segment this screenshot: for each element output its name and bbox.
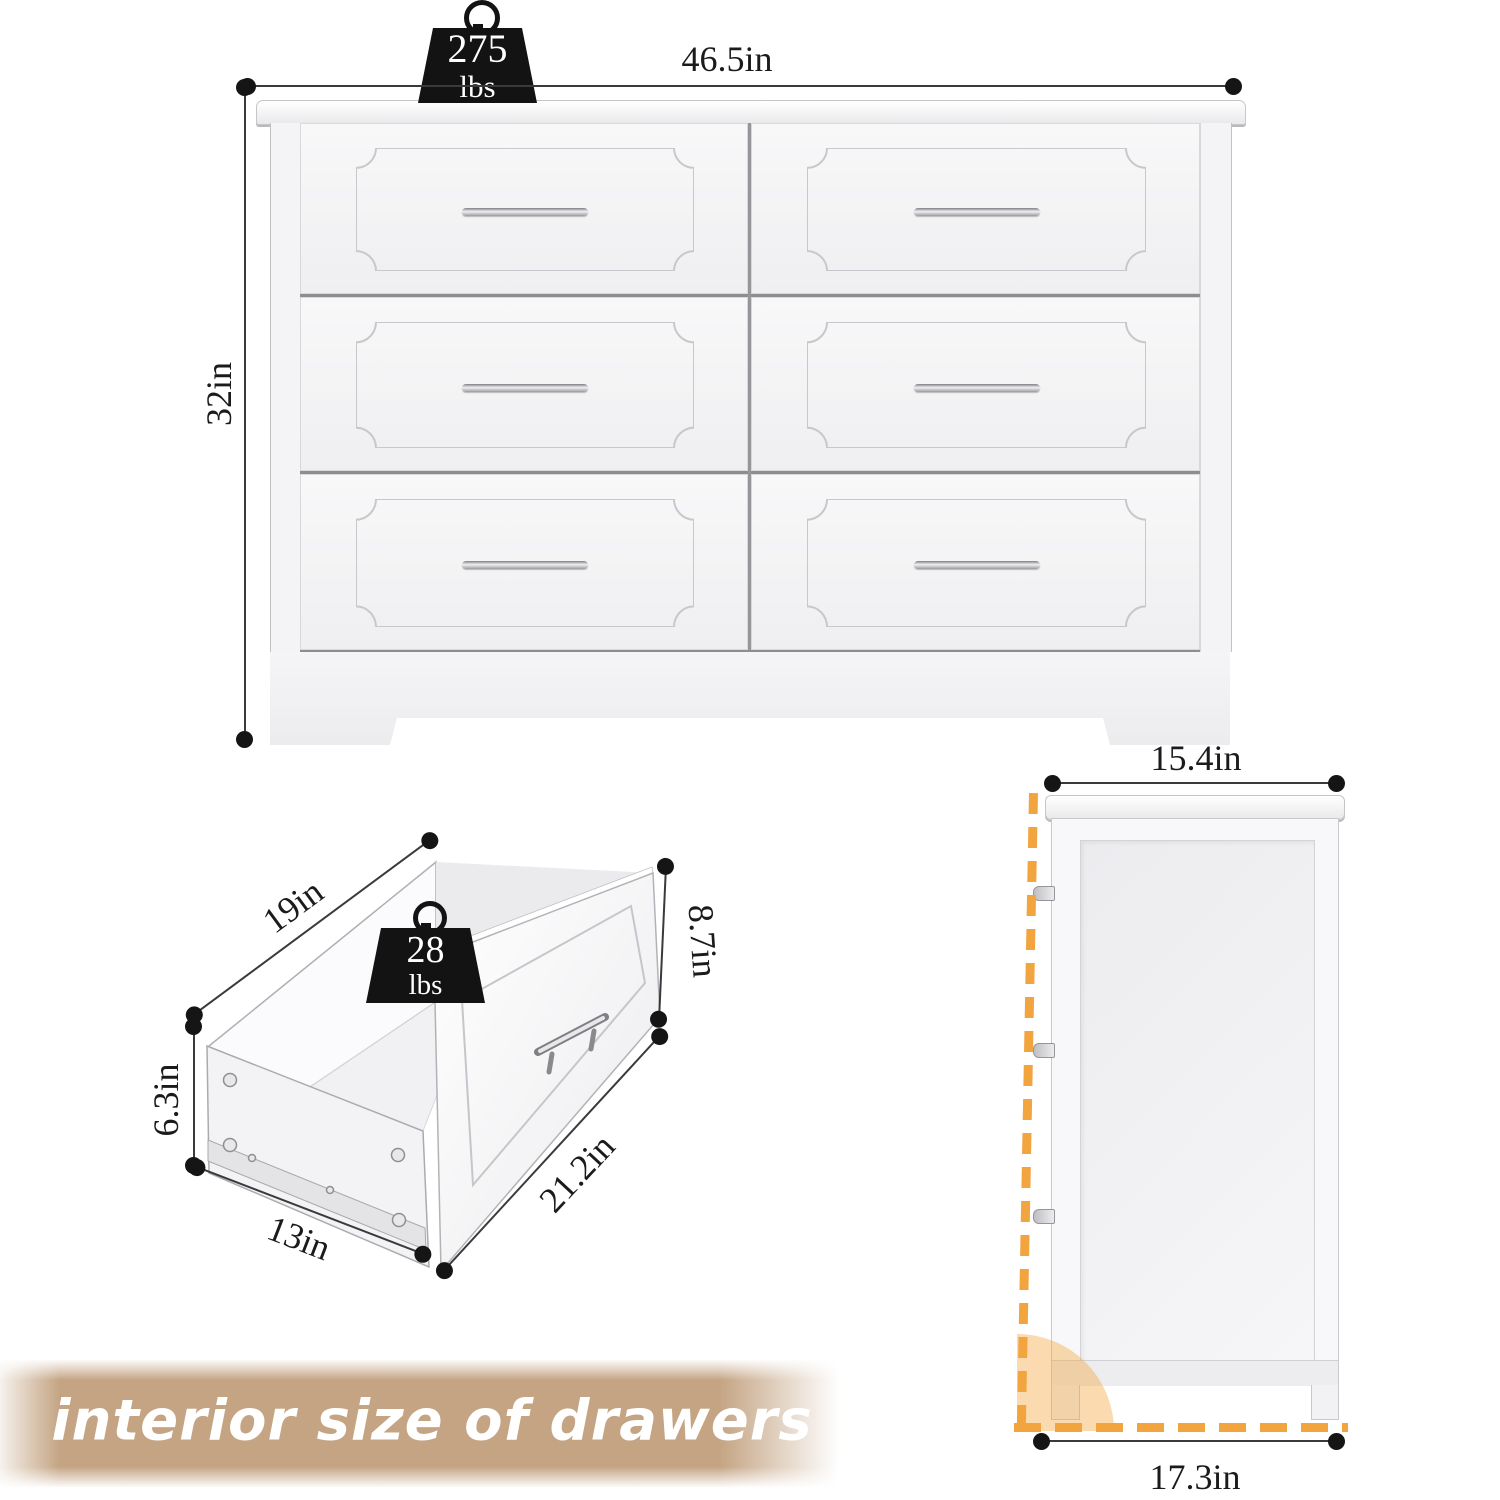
weight-body-icon: 28 lbs xyxy=(366,928,485,1003)
weight-capacity-icon: 275 lbs xyxy=(414,0,540,104)
sideview-top-board xyxy=(1045,795,1345,820)
dim-dot xyxy=(1044,775,1061,792)
sideview-handle-profile xyxy=(1033,1043,1055,1058)
weight-capacity-value: 275 xyxy=(448,29,508,69)
sideview-back-leg xyxy=(1311,1385,1339,1420)
dimension-line-side-bottom-depth xyxy=(1041,1440,1337,1442)
dim-dot xyxy=(236,731,253,748)
side-top-depth-label: 15.4in xyxy=(1150,737,1241,779)
dim-dot xyxy=(185,1018,202,1035)
product-dimension-diagram: 275 lbs 28 lbs 46.5in 32in 19in xyxy=(0,0,1500,1500)
dimension-line-drawer-height xyxy=(193,1026,195,1166)
dim-dot xyxy=(236,79,253,96)
dim-dot xyxy=(1033,1433,1050,1450)
side-bottom-depth-label: 17.3in xyxy=(1149,1456,1240,1498)
dim-dot xyxy=(1328,1433,1345,1450)
dimension-line-overall-height xyxy=(244,87,246,740)
sideview-handle-profile xyxy=(1033,1209,1055,1224)
dimension-line-side-top-depth xyxy=(1052,782,1337,784)
dim-dot xyxy=(1225,78,1242,95)
dim-dot xyxy=(1328,775,1345,792)
overall-height-label: 32in xyxy=(198,362,240,426)
weight-body-icon: 275 lbs xyxy=(418,28,537,103)
weight-capacity-value: 28 xyxy=(407,931,445,969)
sideview-handle-profile xyxy=(1033,886,1055,901)
sideview-side-panel xyxy=(1080,840,1315,1362)
drawer-front-height-label: 8.7in xyxy=(680,903,727,979)
drawer-weight-capacity-icon: 28 lbs xyxy=(362,901,488,1003)
caption-text: interior size of drawers xyxy=(51,1389,812,1454)
dimension-line-overall-width xyxy=(247,85,1234,87)
overall-width-label: 46.5in xyxy=(681,38,772,80)
drawer-interior-height-label: 6.3in xyxy=(145,1063,187,1136)
weight-capacity-unit: lbs xyxy=(409,971,443,1000)
